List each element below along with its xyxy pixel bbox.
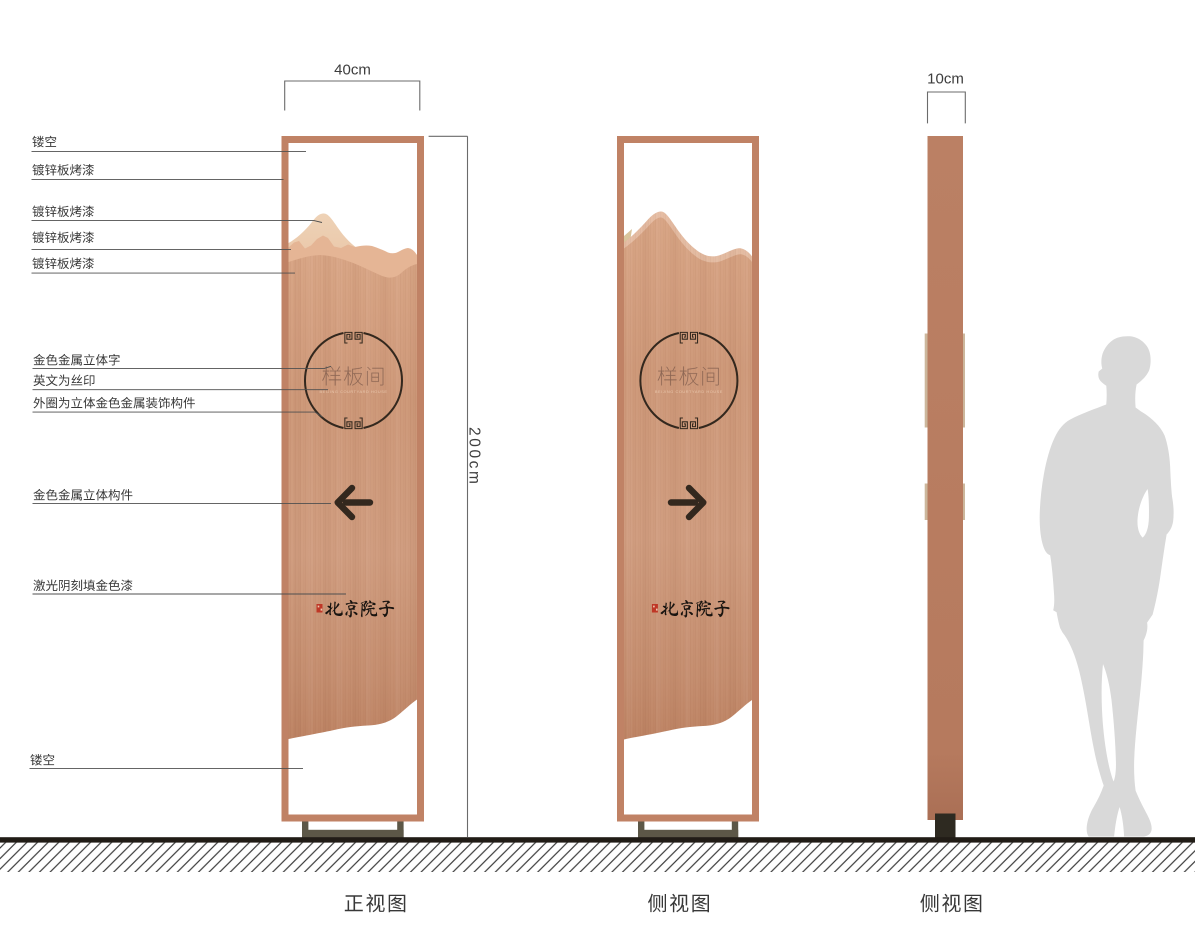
svg-text:BEIJING COURTYARD HOUSE: BEIJING COURTYARD HOUSE <box>655 389 723 394</box>
svg-text:BEIJING COURTYARD HOUSE: BEIJING COURTYARD HOUSE <box>319 389 387 394</box>
svg-text:40cm: 40cm <box>334 62 371 79</box>
svg-text:200cm: 200cm <box>465 427 482 487</box>
svg-text:10cm: 10cm <box>927 71 964 88</box>
